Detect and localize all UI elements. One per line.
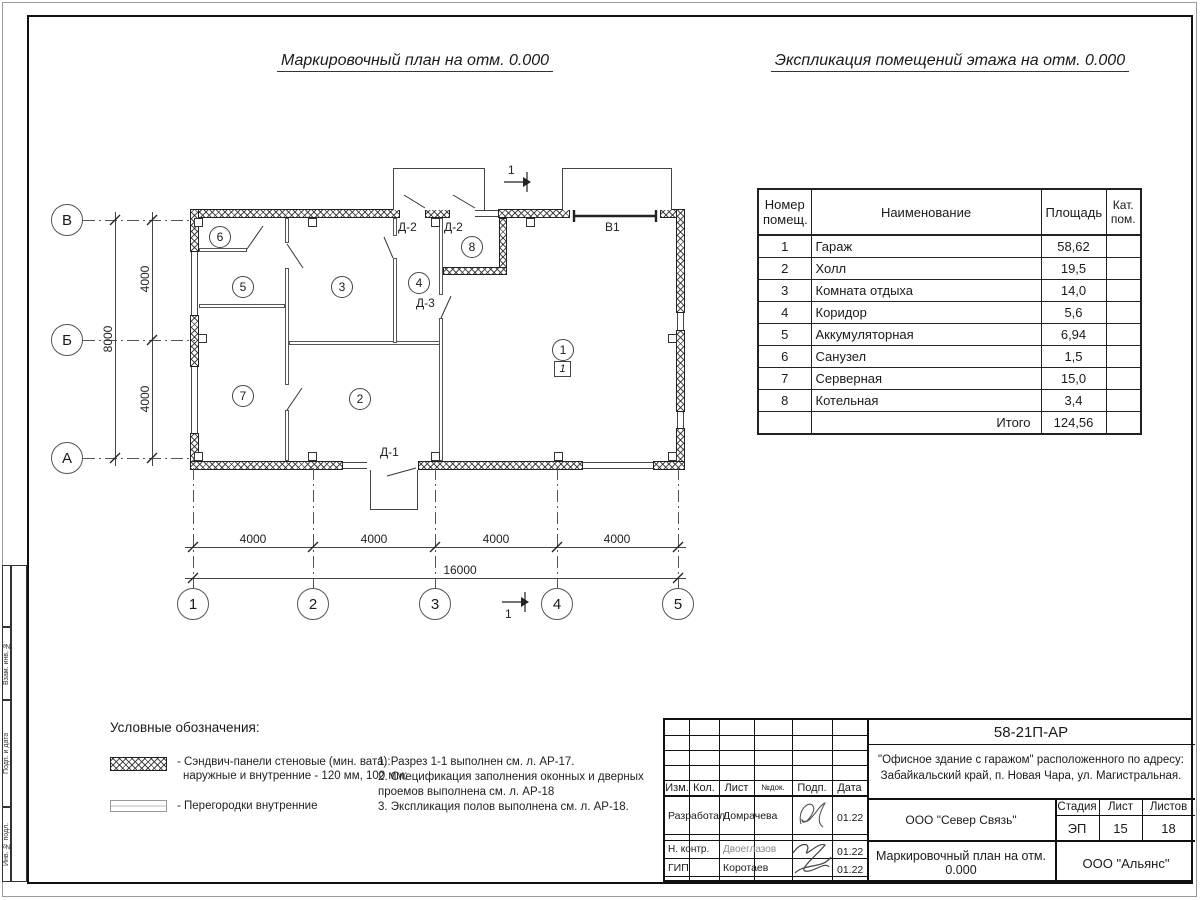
room-area: 19,5 <box>1041 258 1106 280</box>
tb-name-developer: Домрачева <box>723 810 793 822</box>
tb-header-podp: Подп. <box>792 780 832 795</box>
room-cat <box>1106 280 1141 302</box>
room-name: Санузел <box>811 346 1041 368</box>
room-num: 5 <box>758 324 811 346</box>
total-label: Итого <box>811 412 1041 435</box>
drawing-sheet: Взам. инв. № Подп. и дата Инв. № подл. М… <box>0 0 1200 900</box>
signature-ncontrol-gip <box>789 839 835 879</box>
note-line-4: 3. Экспликация полов выполнена см. л. АР… <box>378 800 629 815</box>
tb-header-ndok: №док. <box>754 780 792 795</box>
room-cat <box>1106 346 1141 368</box>
col-header-name: Наименование <box>811 189 1041 235</box>
tb-role-developer: Разработал <box>668 810 728 822</box>
note-line-3: проемов выполнена см. л. АР-18 <box>378 785 554 800</box>
room-num: 7 <box>758 368 811 390</box>
room-area: 6,94 <box>1041 324 1106 346</box>
tb-project-line1: "Офисное здание с гаражом" расположенног… <box>867 752 1195 768</box>
tb-header-list: Лист <box>719 780 754 795</box>
tb-header-kol: Кол. <box>689 780 719 795</box>
tb-date-gip: 01.22 <box>837 864 869 876</box>
tb-sheet-label: Лист <box>1099 798 1142 815</box>
tb-project-line2: Забайкальский край, п. Новая Чара, ул. М… <box>867 768 1195 784</box>
tb-stage-label: Стадия <box>1055 798 1099 815</box>
table-row: 3Комната отдыха14,0 <box>758 280 1141 302</box>
note-line-2: 2. Спецификация заполнения оконных и две… <box>378 770 644 785</box>
room-num: 8 <box>758 390 811 412</box>
col-header-area: Площадь <box>1041 189 1106 235</box>
room-cat <box>1106 302 1141 324</box>
room-name: Гараж <box>811 235 1041 258</box>
table-row: 1Гараж58,62 <box>758 235 1141 258</box>
legend-item1-line2: наружные и внутренние - 120 мм, 100 мм; <box>183 769 407 784</box>
room-area: 15,0 <box>1041 368 1106 390</box>
table-total-row: Итого124,56 <box>758 412 1141 435</box>
room-area: 14,0 <box>1041 280 1106 302</box>
tb-sheets-label: Листов <box>1142 798 1195 815</box>
room-cat <box>1106 258 1141 280</box>
table-row: 7Серверная15,0 <box>758 368 1141 390</box>
room-name: Котельная <box>811 390 1041 412</box>
room-num: 2 <box>758 258 811 280</box>
room-cat <box>1106 324 1141 346</box>
room-name: Серверная <box>811 368 1041 390</box>
tb-drawing-title: Маркировочный план на отм. 0.000 <box>867 842 1055 884</box>
title-block: Изм. Кол. Лист №док. Подп. Дата Разработ… <box>663 718 1193 882</box>
room-num: 4 <box>758 302 811 324</box>
table-row: 5Аккумуляторная6,94 <box>758 324 1141 346</box>
legend-item2: - Перегородки внутренние <box>177 799 318 814</box>
room-cat <box>1106 390 1141 412</box>
tb-header-izm: Изм. <box>665 780 689 795</box>
explication-table: Номер помещ. Наименование Площадь Кат. п… <box>757 188 1142 435</box>
room-cat <box>1106 368 1141 390</box>
legend-item1-line1: - Сэндвич-панели стеновые (мин. вата): <box>177 755 391 770</box>
room-area: 5,6 <box>1041 302 1106 324</box>
legend-swatch-partition <box>110 800 167 812</box>
room-area: 58,62 <box>1041 235 1106 258</box>
tb-name-ncontrol: Двоеглазов <box>723 844 793 855</box>
tb-name-gip: Коротаев <box>723 862 793 874</box>
room-area: 3,4 <box>1041 390 1106 412</box>
tb-stage-value: ЭП <box>1055 816 1099 840</box>
tb-org2: ООО "Альянс" <box>1057 842 1195 884</box>
total-empty <box>758 412 811 435</box>
tb-org: ООО "Север Связь" <box>867 800 1055 840</box>
tb-header-data: Дата <box>832 780 867 795</box>
signature-developer <box>793 798 833 834</box>
total-cat-empty <box>1106 412 1141 435</box>
col-header-num: Номер помещ. <box>758 189 811 235</box>
tb-role-gip: ГИП <box>668 862 728 874</box>
tb-doc-number: 58-21П-АР <box>867 720 1195 744</box>
tb-role-ncontrol: Н. контр. <box>668 844 728 855</box>
room-name: Холл <box>811 258 1041 280</box>
col-header-cat: Кат. пом. <box>1106 189 1141 235</box>
total-value: 124,56 <box>1041 412 1106 435</box>
room-num: 1 <box>758 235 811 258</box>
table-row: 4Коридор5,6 <box>758 302 1141 324</box>
tb-sheet-value: 15 <box>1099 816 1142 840</box>
legend-swatch-sandwich <box>110 757 167 771</box>
legend-heading: Условные обозначения: <box>110 720 260 735</box>
room-name: Комната отдыха <box>811 280 1041 302</box>
tb-date-developer: 01.22 <box>837 812 869 824</box>
table-row: 6Санузел1,5 <box>758 346 1141 368</box>
room-area: 1,5 <box>1041 346 1106 368</box>
note-line-1: 1. Разрез 1-1 выполнен см. л. АР-17. <box>378 755 575 770</box>
room-name: Аккумуляторная <box>811 324 1041 346</box>
tb-sheets-value: 18 <box>1142 816 1195 840</box>
room-num: 3 <box>758 280 811 302</box>
table-row: 8Котельная3,4 <box>758 390 1141 412</box>
room-cat <box>1106 235 1141 258</box>
table-row: 2Холл19,5 <box>758 258 1141 280</box>
tb-date-ncontrol: 01.22 <box>837 846 869 858</box>
room-num: 6 <box>758 346 811 368</box>
room-name: Коридор <box>811 302 1041 324</box>
